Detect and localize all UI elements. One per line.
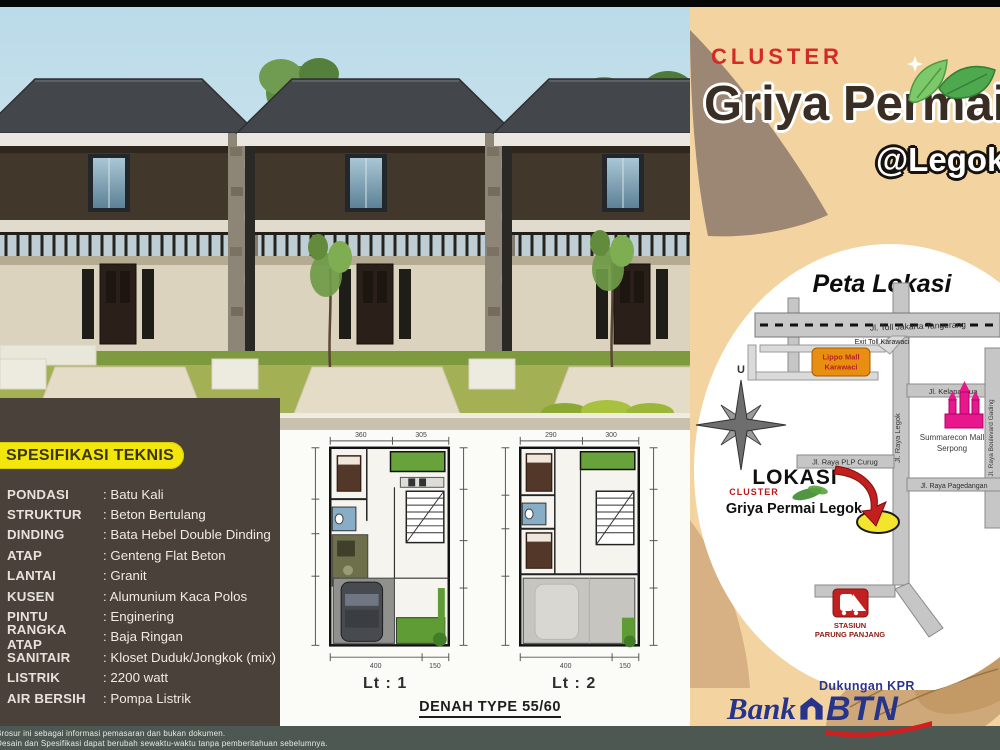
plan1-garden-top — [390, 452, 444, 472]
plan2-dim-bottom-b: 150 — [619, 663, 631, 670]
label-lippo-2: Karawaci — [825, 363, 858, 372]
spec-row: STRUKTUR: Beton Bertulang — [7, 504, 277, 524]
spec-row: KUSEN: Alumunium Kaca Polos — [7, 586, 277, 606]
spec-row: ATAP: Genteng Flat Beton — [7, 545, 277, 565]
plan2-dim-bottom-a: 400 — [560, 663, 572, 670]
spec-header: SPESIFIKASI TEKNIS — [6, 447, 174, 464]
map-title: Peta Lokasi — [813, 270, 953, 298]
plan1-dim-top-a: 360 — [355, 432, 367, 439]
spec-row: AIR BERSIH: Pompa Listrik — [7, 688, 277, 708]
plan1-label: Lt : 1 — [363, 675, 407, 693]
plan1-carport — [333, 578, 394, 643]
plan2-label: Lt : 2 — [552, 675, 596, 693]
label-pagedangan: Jl. Raya Pagedangan — [921, 483, 988, 490]
spec-row: LANTAI: Granit — [7, 566, 277, 586]
lokasi-heading: LOKASI — [752, 466, 837, 489]
floorplan-1: 360 305 400 150 — [302, 430, 477, 672]
label-lippo-1: Lippo Mall — [822, 353, 859, 362]
btn-swoosh-icon — [822, 718, 937, 738]
plan1-dim-top-b: 305 — [415, 432, 427, 439]
label-station-2: PARUNG PANJANG — [815, 630, 885, 639]
spec-row: RANGKA ATAP: Baja Ringan — [7, 627, 277, 647]
plan2-balcony-garden — [580, 452, 634, 470]
btn-logo-icon — [798, 695, 825, 722]
lokasi-name: Griya Permai Legok — [726, 501, 863, 517]
bank-word: Bank — [727, 691, 796, 727]
disclaimer-line-2: Desain dan Spesifikasi dapat berubah sew… — [0, 739, 1000, 749]
floorplan-2: 290 300 400 150 — [492, 430, 667, 672]
spec-list: PONDASI: Batu Kali STRUKTUR: Beton Bertu… — [7, 484, 277, 708]
floorplan-panel: 360 305 400 150 — [280, 430, 690, 726]
plan1-dim-bottom-a: 400 — [370, 663, 382, 670]
plan2-stairs — [596, 491, 634, 544]
lokasi-kicker: CLUSTER — [729, 487, 779, 497]
label-station-1: STASIUN — [834, 621, 866, 630]
label-boulevard: Jl. Raya Boulevard Gading — [988, 399, 995, 477]
label-road-legok: Jl. Raya Legok — [893, 413, 902, 463]
spec-header-pill: SPESIFIKASI TEKNIS — [0, 442, 184, 469]
house-render-scene — [0, 7, 690, 432]
plan-caption: DENAH TYPE 55/60 — [385, 698, 595, 716]
title-kicker: CLUSTER — [711, 44, 843, 70]
plan1-dim-bottom-b: 150 — [429, 663, 441, 670]
location-map: Peta Lokasi Jl. Toll Jakarta Tangerang E… — [690, 238, 1000, 690]
plan2-dim-top-b: 300 — [605, 432, 617, 439]
spec-row: SANITAIR: Kloset Duduk/Jongkok (mix) — [7, 647, 277, 667]
house-render — [0, 7, 690, 432]
sparkle-icon — [907, 56, 923, 72]
plan2-lower-roof — [523, 578, 635, 643]
spec-row: PONDASI: Batu Kali — [7, 484, 277, 504]
label-summarecon-1: Summarecon Mall — [920, 433, 985, 442]
compass-north-label: U — [737, 364, 745, 376]
plan2-dim-top-a: 290 — [545, 432, 557, 439]
spec-panel: SPESIFIKASI TEKNIS PONDASI: Batu Kali ST… — [0, 398, 280, 726]
spec-row: LISTRIK: 2200 watt — [7, 668, 277, 688]
spec-row: DINDING: Bata Hebel Double Dinding — [7, 525, 277, 545]
top-black-strip — [0, 0, 1000, 7]
project-location: @Legok — [876, 141, 1000, 179]
brochure-page: SPESIFIKASI TEKNIS PONDASI: Batu Kali ST… — [0, 0, 1000, 750]
plan1-stairs — [406, 491, 444, 542]
label-summarecon-2: Serpong — [937, 444, 967, 453]
leaves-icon — [895, 48, 1000, 118]
lippo-mall-marker: Lippo Mall Karawaci — [812, 348, 870, 376]
label-toll-exit: Exit Toll Karawaci — [855, 339, 910, 346]
